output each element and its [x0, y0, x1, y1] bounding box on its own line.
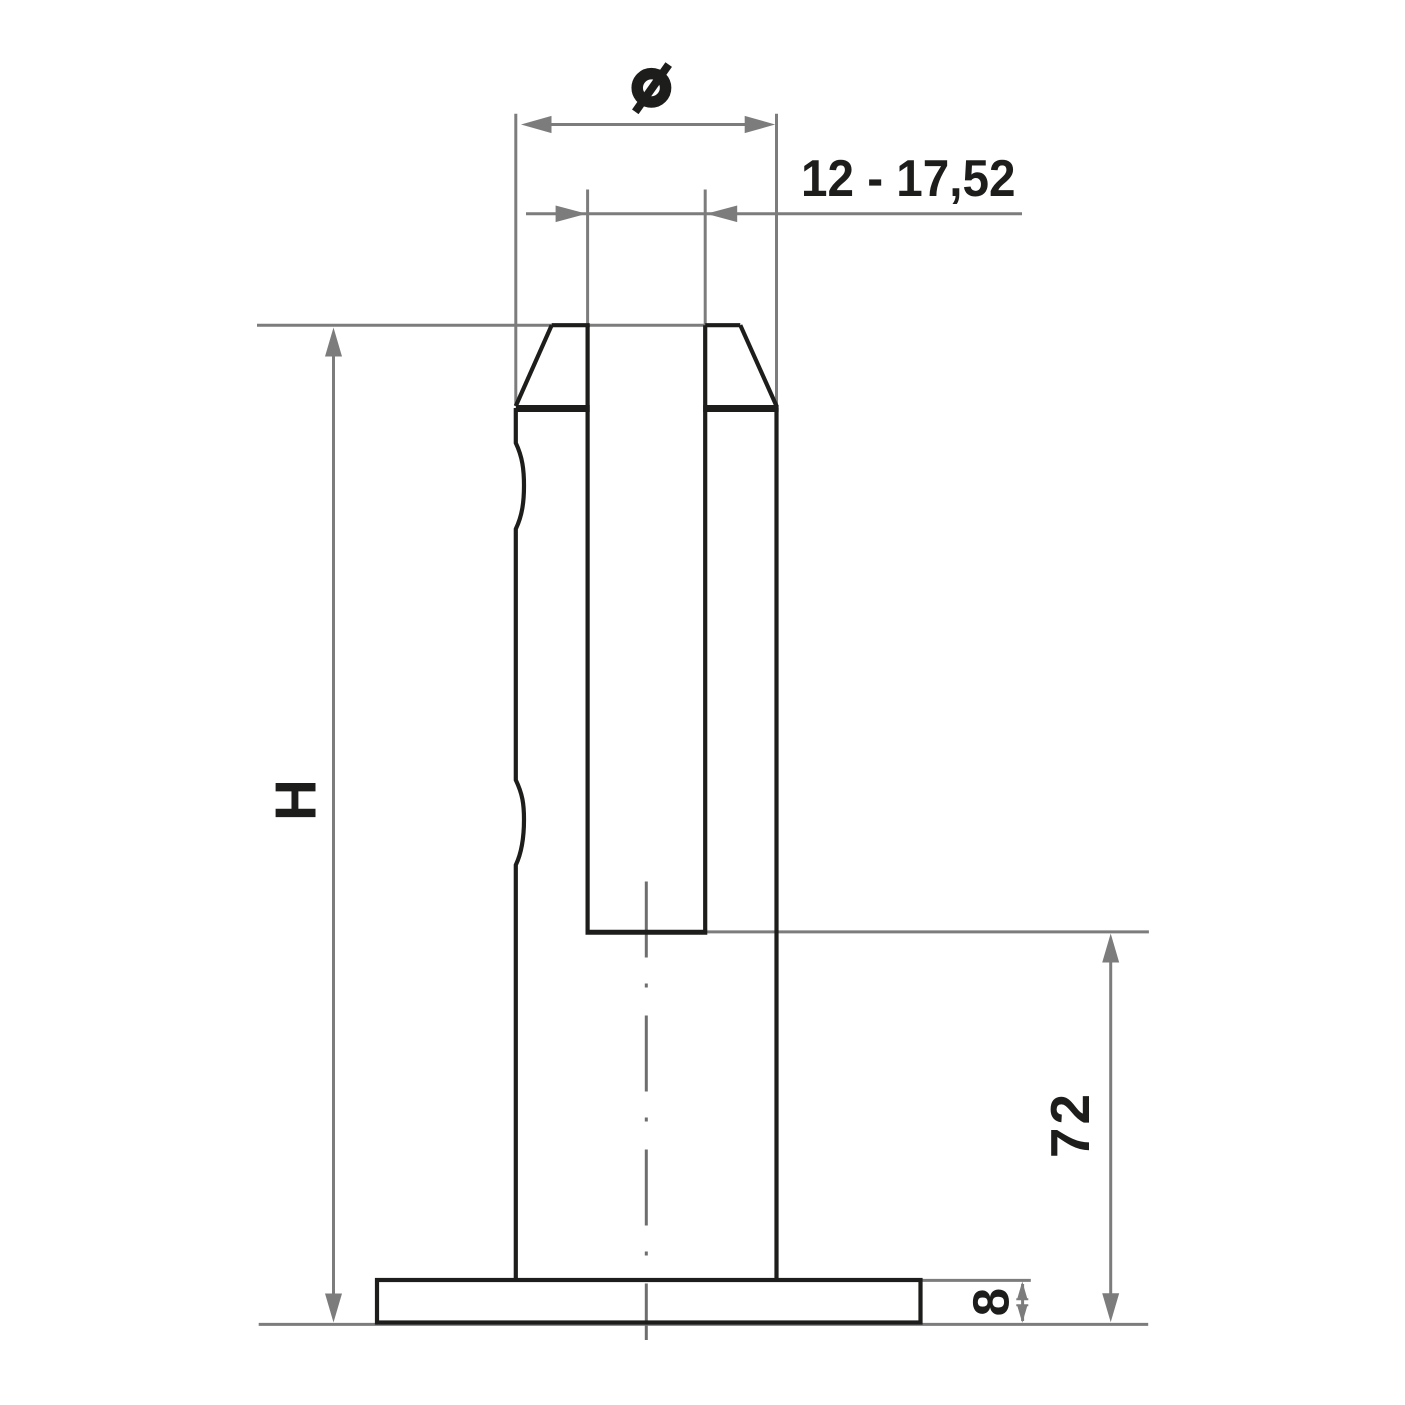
svg-text:72: 72: [1039, 1091, 1101, 1158]
svg-text:12 - 17,52: 12 - 17,52: [801, 150, 1016, 208]
svg-text:H: H: [264, 779, 329, 821]
svg-text:8: 8: [963, 1288, 1020, 1316]
